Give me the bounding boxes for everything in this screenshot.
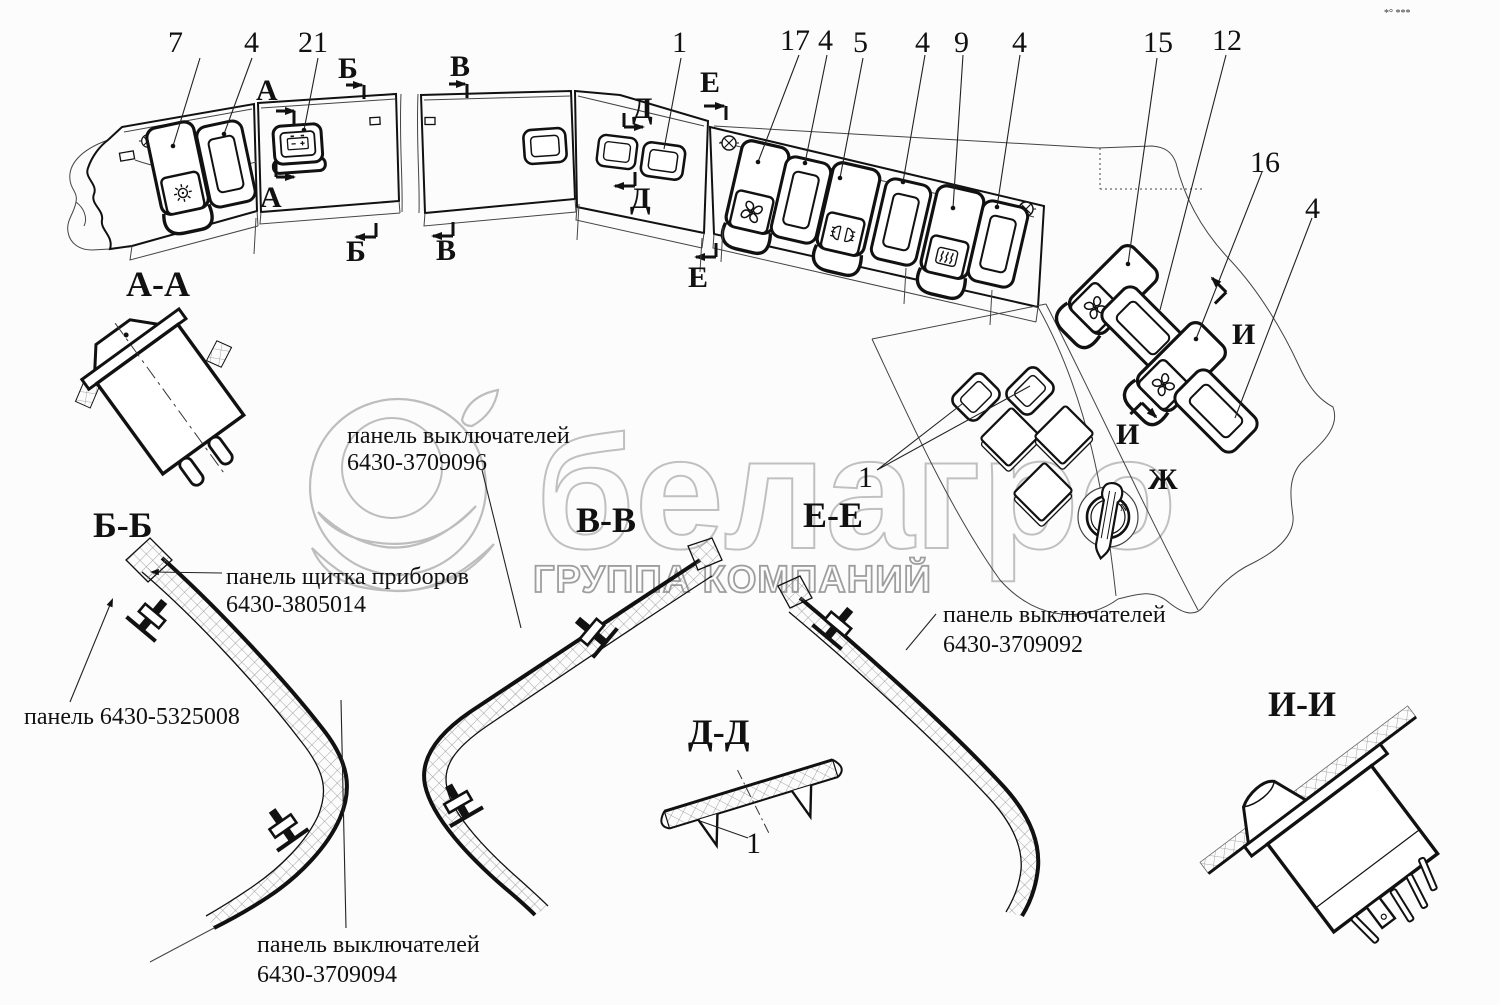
cut-letter-e1: Е bbox=[700, 66, 720, 99]
cut-mark-brackets bbox=[276, 80, 1229, 430]
label-switch-panel-094-line1: панель выключателей bbox=[257, 932, 480, 958]
cut-letter-a1: А bbox=[256, 74, 278, 107]
callout-17: 17 bbox=[780, 24, 810, 57]
zone-letter-zh: Ж bbox=[1148, 463, 1178, 496]
callout-12: 12 bbox=[1212, 24, 1242, 57]
callout-15: 15 bbox=[1143, 26, 1173, 59]
connector-slot bbox=[425, 118, 435, 125]
cut-letter-e2: Е bbox=[688, 261, 708, 294]
ignition-position-label: N bbox=[1120, 503, 1127, 514]
callout-1c: 1 bbox=[746, 827, 761, 860]
connector-slot bbox=[370, 117, 380, 125]
callout-1a: 1 bbox=[672, 26, 687, 59]
callout-4a: 4 bbox=[244, 26, 259, 59]
label-panel-5325008: панель 6430-5325008 bbox=[24, 704, 240, 730]
corner-marks: *° *** bbox=[1384, 8, 1411, 19]
callout-4c: 4 bbox=[915, 26, 930, 59]
label-instrument-panel-line1: панель щитка приборов bbox=[226, 564, 469, 590]
callout-9: 9 bbox=[954, 26, 969, 59]
diagram-page: белагро ГРУППА КОМПАНИЙ bbox=[0, 0, 1500, 1005]
diagram-canvas: белагро ГРУППА КОМПАНИЙ bbox=[0, 0, 1500, 1005]
section-view-ii bbox=[1185, 686, 1500, 1002]
opening-blank bbox=[523, 128, 567, 165]
connector-slot bbox=[119, 151, 134, 161]
panel-joint bbox=[400, 94, 419, 213]
callout-4e: 4 bbox=[1305, 192, 1320, 225]
panel-strip-3 bbox=[421, 91, 576, 226]
label-switch-panel-094-line2: 6430-3709094 bbox=[257, 962, 397, 988]
cut-letter-d1: Д bbox=[632, 92, 653, 125]
callout-7: 7 bbox=[168, 26, 183, 59]
callout-16: 16 bbox=[1250, 146, 1280, 179]
callout-21: 21 bbox=[298, 26, 328, 59]
section-title-dd: Д-Д bbox=[688, 712, 750, 752]
label-switch-panel-092-line2: 6430-3709092 bbox=[943, 632, 1083, 658]
callout-4d: 4 bbox=[1012, 26, 1027, 59]
section-view-aa bbox=[52, 276, 289, 519]
label-switch-panel-096-line1: панель выключателей bbox=[347, 423, 570, 449]
cut-letter-b2: Б bbox=[346, 235, 366, 268]
cut-letter-d2: Д bbox=[630, 182, 651, 215]
callout-5: 5 bbox=[853, 26, 868, 59]
cut-letter-b1: Б bbox=[338, 52, 358, 85]
section-title-aa: А-А bbox=[126, 264, 190, 304]
section-title-ee: Е-Е bbox=[803, 495, 863, 535]
section-title-vv: В-В bbox=[576, 500, 636, 540]
callout-4b: 4 bbox=[818, 24, 833, 57]
screw-icon bbox=[719, 136, 739, 150]
opening-1 bbox=[640, 141, 686, 181]
switch-21-battery bbox=[271, 123, 326, 174]
cut-letter-i1: И bbox=[1232, 318, 1255, 351]
watermark-subtitle-text: ГРУППА КОМПАНИЙ bbox=[533, 556, 932, 601]
label-instrument-panel-line2: 6430-3805014 bbox=[226, 592, 366, 618]
opening-d bbox=[596, 134, 638, 170]
section-title-ii: И-И bbox=[1268, 684, 1336, 724]
cut-letter-i2: И bbox=[1116, 418, 1139, 451]
label-switch-panel-092-line1: панель выключателей bbox=[943, 602, 1166, 628]
cut-letter-a2: А bbox=[260, 181, 282, 214]
section-title-bb: Б-Б bbox=[93, 505, 153, 545]
watermark-logo bbox=[310, 390, 498, 591]
label-switch-panel-096-line2: 6430-3709096 bbox=[347, 450, 487, 476]
cut-letter-v1: В bbox=[450, 50, 470, 83]
cut-letter-v2: В bbox=[436, 234, 456, 267]
callout-1b: 1 bbox=[858, 461, 873, 494]
